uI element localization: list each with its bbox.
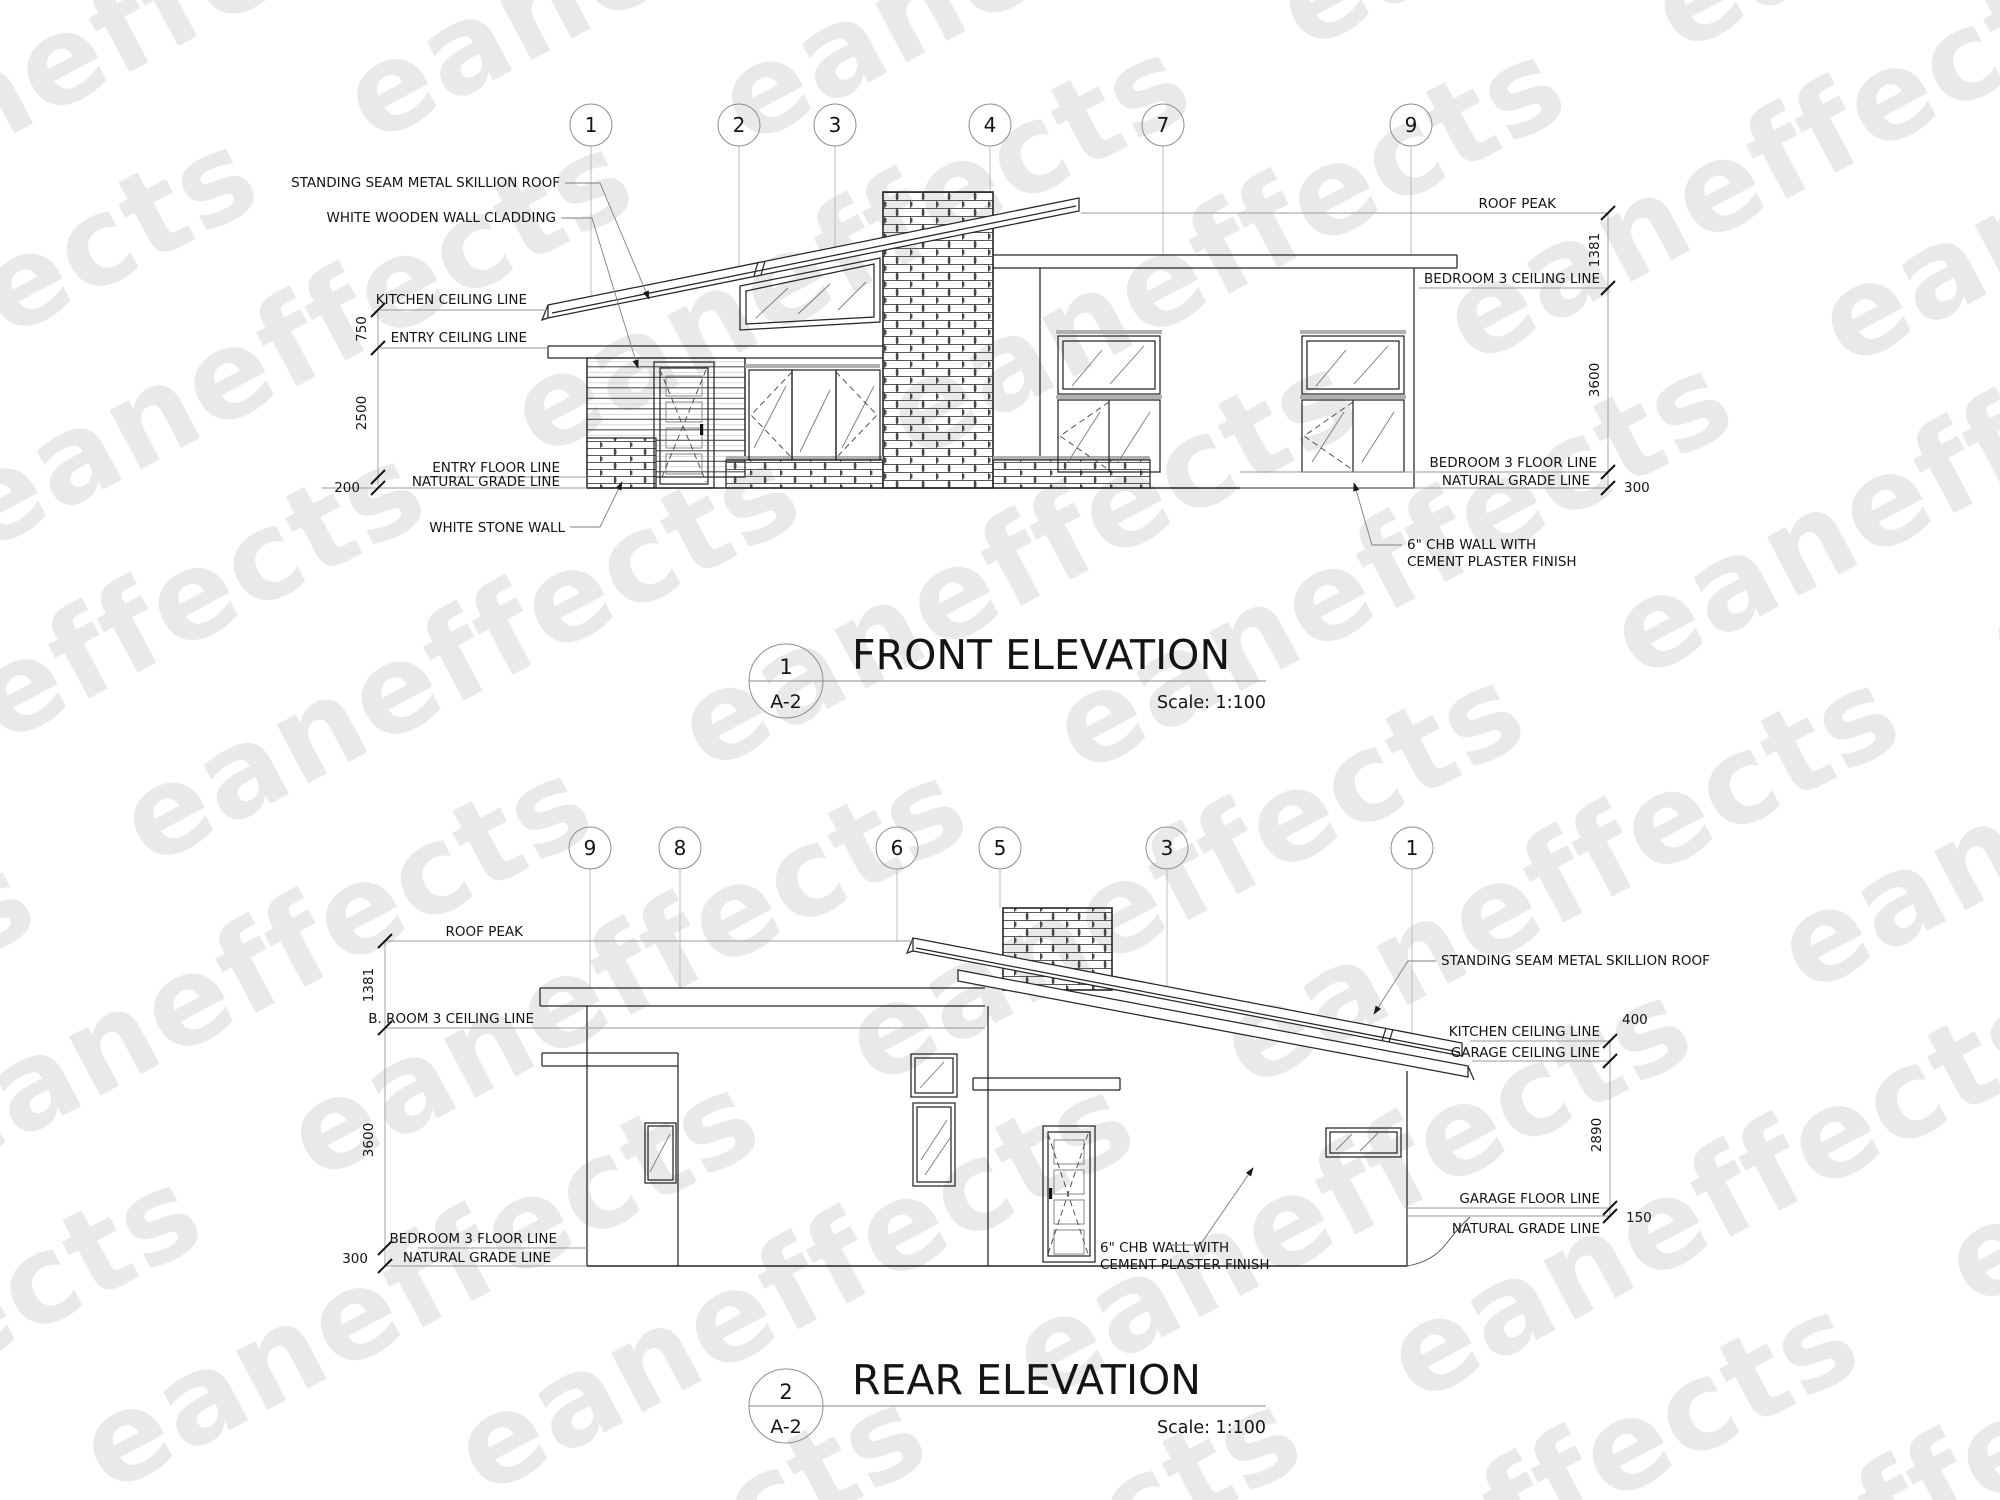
label-bedroom3-ceiling: BEDROOM 3 CEILING LINE (1424, 271, 1600, 287)
grid-bubble-label: 9 (584, 836, 597, 860)
rear-window-tall (913, 1103, 955, 1186)
dim-300: 300 (1624, 480, 1650, 496)
dim-400: 400 (1622, 1012, 1648, 1028)
label-roof-peak: ROOF PEAK (446, 924, 525, 940)
drawing-sheet: eaneffectseaneffectseaneffectseaneffects… (0, 0, 2000, 1500)
dim-1381: 1381 (361, 968, 377, 1002)
rear-skillion-roof (907, 938, 1474, 1080)
grid-bubble-label: 1 (1406, 836, 1419, 860)
label-bedroom3-floor: BEDROOM 3 FLOOR LINE (390, 1231, 558, 1247)
label-stone-wall: WHITE STONE WALL (429, 520, 565, 536)
rear-elevation: 9 8 6 5 3 1 (342, 827, 1710, 1273)
front-title-block: 1 A-2 FRONT ELEVATION Scale: 1:100 (749, 631, 1266, 718)
grid-bubble-label: 3 (1161, 836, 1174, 860)
front-title: FRONT ELEVATION (852, 631, 1230, 679)
label-chb-wall-line1: 6" CHB WALL WITH (1100, 1240, 1229, 1256)
rear-title-block: 2 A-2 REAR ELEVATION Scale: 1:100 (749, 1356, 1266, 1443)
dim-750: 750 (354, 316, 370, 342)
front-entry-canopy (548, 346, 883, 358)
front-left-dimensions: 750 2500 200 (334, 303, 385, 496)
grid-bubble-label: 3 (829, 113, 842, 137)
rear-left-annotations: ROOF PEAK B. ROOM 3 CEILING LINE BEDROOM… (368, 924, 985, 1266)
rear-walls (587, 1071, 1470, 1266)
grid-bubble-label: 2 (733, 113, 746, 137)
front-elevation: 1 2 3 4 7 9 (291, 104, 1650, 570)
elevation-drawing: 1 2 3 4 7 9 (0, 0, 2000, 1500)
rear-scale: Scale: 1:100 (1157, 1418, 1266, 1438)
dim-2500: 2500 (354, 396, 370, 430)
dim-3600: 3600 (361, 1123, 377, 1157)
front-view-number: 1 (779, 655, 792, 679)
grid-bubble-label: 8 (674, 836, 687, 860)
front-scale: Scale: 1:100 (1157, 693, 1266, 713)
dim-3600: 3600 (1587, 363, 1603, 397)
front-living-window (745, 366, 880, 460)
rear-sheet-ref: A-2 (770, 1416, 802, 1438)
label-wall-cladding: WHITE WOODEN WALL CLADDING (327, 210, 556, 226)
label-kitchen-ceiling: KITCHEN CEILING LINE (376, 292, 527, 308)
grid-bubble-label: 9 (1405, 113, 1418, 137)
grid-bubble-label: 5 (994, 836, 1007, 860)
label-garage-ceiling: GARAGE CEILING LINE (1451, 1045, 1600, 1061)
label-roof-peak: ROOF PEAK (1479, 196, 1558, 212)
rear-door-canopy (973, 1078, 1120, 1090)
label-natural-grade-right: NATURAL GRADE LINE (1452, 1221, 1600, 1237)
label-broom3-ceiling: B. ROOM 3 CEILING LINE (368, 1011, 534, 1027)
label-chb-wall-line1: 6" CHB WALL WITH (1407, 537, 1536, 553)
rear-bedroom-wing (540, 988, 988, 1266)
grid-bubble-label: 6 (891, 836, 904, 860)
front-sheet-ref: A-2 (770, 691, 802, 713)
rear-window-small-left (645, 1123, 676, 1183)
door-handle (1049, 1188, 1052, 1199)
dim-150: 150 (1626, 1210, 1652, 1226)
label-kitchen-ceiling: KITCHEN CEILING LINE (1449, 1024, 1600, 1040)
label-skillion-roof: STANDING SEAM METAL SKILLION ROOF (291, 175, 560, 191)
front-grid-bubbles: 1 2 3 4 7 9 (570, 104, 1432, 146)
rear-title: REAR ELEVATION (852, 1356, 1201, 1404)
label-chb-wall-line2: CEMENT PLASTER FINISH (1100, 1257, 1270, 1273)
label-natural-grade-right: NATURAL GRADE LINE (1442, 473, 1590, 489)
label-garage-floor: GARAGE FLOOR LINE (1459, 1191, 1600, 1207)
dim-200: 200 (334, 480, 360, 496)
rear-view-number: 2 (779, 1380, 792, 1404)
label-natural-grade-left: NATURAL GRADE LINE (403, 1250, 551, 1266)
door-handle (700, 424, 703, 435)
label-skillion-roof: STANDING SEAM METAL SKILLION ROOF (1441, 953, 1710, 969)
rear-window-garage (1326, 1128, 1401, 1157)
rear-grid-bubbles: 9 8 6 5 3 1 (569, 827, 1433, 869)
dim-300: 300 (342, 1251, 368, 1267)
rear-left-dimensions: 1381 3600 300 (342, 934, 392, 1273)
front-right-dimensions: 1381 3600 300 (1587, 206, 1650, 496)
grid-bubble-label: 7 (1157, 113, 1170, 137)
front-bedroom-window-2 (1300, 332, 1406, 472)
grid-bubble-label: 1 (585, 113, 598, 137)
label-chb-wall-line2: CEMENT PLASTER FINISH (1407, 554, 1577, 570)
rear-window-upper (911, 1054, 957, 1097)
label-entry-ceiling: ENTRY CEILING LINE (391, 330, 527, 346)
grid-bubble-label: 4 (984, 113, 997, 137)
front-bedroom-window-1 (1056, 332, 1162, 472)
dim-1381: 1381 (1587, 233, 1603, 267)
rear-door (1043, 1126, 1095, 1262)
label-bedroom3-floor: BEDROOM 3 FLOOR LINE (1430, 455, 1598, 471)
dim-2890: 2890 (1589, 1118, 1605, 1152)
